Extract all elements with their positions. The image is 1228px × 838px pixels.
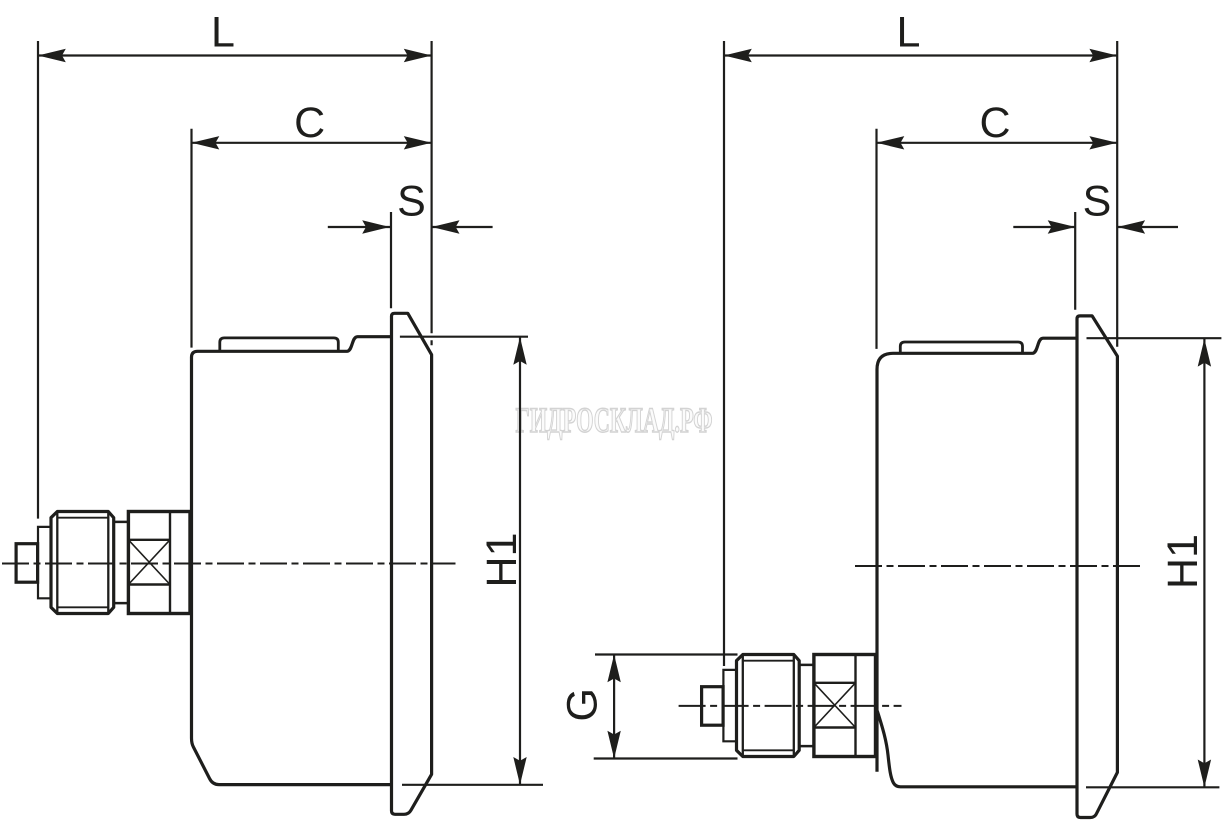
- svg-text:H1: H1: [1159, 534, 1207, 589]
- svg-text:H1: H1: [478, 533, 526, 588]
- svg-text:G: G: [559, 688, 607, 721]
- svg-text:C: C: [979, 99, 1010, 147]
- svg-text:L: L: [211, 8, 235, 56]
- svg-text:S: S: [1083, 178, 1112, 226]
- svg-text:L: L: [897, 8, 921, 56]
- svg-text:C: C: [294, 99, 325, 147]
- svg-text:ГИДРОСКЛАД.РФ: ГИДРОСКЛАД.РФ: [516, 400, 713, 440]
- svg-text:S: S: [397, 178, 426, 226]
